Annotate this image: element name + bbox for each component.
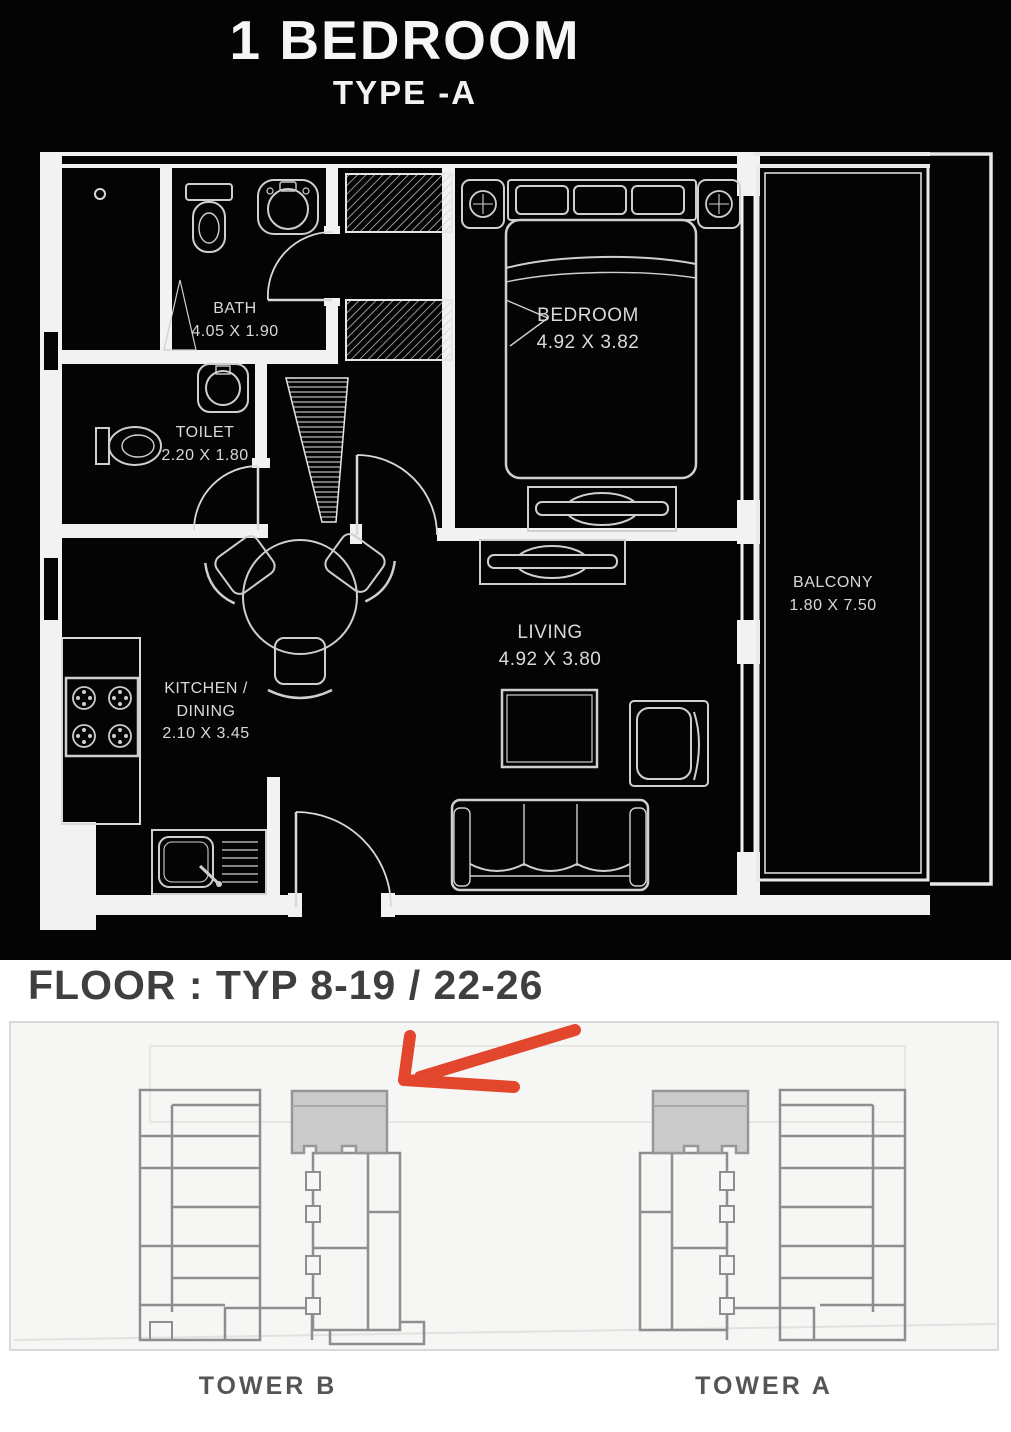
toilet-sink-icon xyxy=(198,364,248,412)
shaft-marker xyxy=(95,189,105,199)
tower-b-highlighted-unit xyxy=(292,1091,387,1153)
brochure-page: { "header": { "title": "1 BEDROOM", "sub… xyxy=(0,0,1011,1432)
balcony-label: BALCONY 1.80 X 7.50 xyxy=(752,572,914,617)
stove-icon xyxy=(66,678,138,756)
kitchen-dining-label: KITCHEN / DINING 2.10 X 3.45 xyxy=(146,678,266,746)
kitchen-dims: 2.10 X 3.45 xyxy=(146,723,266,746)
bedroom-label: BEDROOM 4.92 X 3.82 xyxy=(498,303,678,357)
dining-table-icon xyxy=(200,528,401,698)
coffee-table-icon xyxy=(502,690,597,767)
living-name: LIVING xyxy=(460,620,640,647)
living-dims: 4.92 X 3.80 xyxy=(460,647,640,674)
kitchen-sink-icon xyxy=(152,830,266,894)
locator-panel xyxy=(10,1022,998,1350)
floorplan-sheet: 1 BEDROOM TYPE -A xyxy=(0,0,1011,960)
bath-label: BATH 4.05 X 1.90 xyxy=(150,298,320,343)
living-console-icon xyxy=(480,540,625,584)
toilet-label: TOILET 2.20 X 1.80 xyxy=(122,422,288,467)
tower-a-highlighted-unit xyxy=(653,1091,748,1153)
closet-hatch xyxy=(286,174,452,522)
armchair-icon xyxy=(630,701,708,786)
plan-title: 1 BEDROOM xyxy=(0,8,810,72)
bath-sink-icon xyxy=(258,180,318,234)
tower-a-label: TOWER A xyxy=(656,1372,872,1401)
bedroom-name: BEDROOM xyxy=(498,303,678,330)
interior-walls xyxy=(62,168,742,897)
nightstand-left-icon xyxy=(462,180,504,228)
floor-locator-diagram xyxy=(0,960,1011,1432)
floorplan-drawing xyxy=(0,150,1011,960)
bath-name: BATH xyxy=(150,298,320,321)
tower-b-label: TOWER B xyxy=(160,1372,376,1401)
kitchen-name-2: DINING xyxy=(146,701,266,724)
bath-wc-icon xyxy=(186,184,232,252)
toilet-dims: 2.20 X 1.80 xyxy=(122,445,288,468)
plan-subtitle: TYPE -A xyxy=(0,74,810,112)
living-label: LIVING 4.92 X 3.80 xyxy=(460,620,640,674)
balcony-name: BALCONY xyxy=(752,572,914,595)
toilet-name: TOILET xyxy=(122,422,288,445)
bedroom-dims: 4.92 X 3.82 xyxy=(498,330,678,357)
nightstand-right-icon xyxy=(698,180,740,228)
balcony-outline xyxy=(753,154,991,884)
sofa-icon xyxy=(452,800,648,890)
bath-dims: 4.05 X 1.90 xyxy=(150,321,320,344)
kitchen-name-1: KITCHEN / xyxy=(146,678,266,701)
bedroom-console-icon xyxy=(528,487,676,531)
balcony-dims: 1.80 X 7.50 xyxy=(752,595,914,618)
